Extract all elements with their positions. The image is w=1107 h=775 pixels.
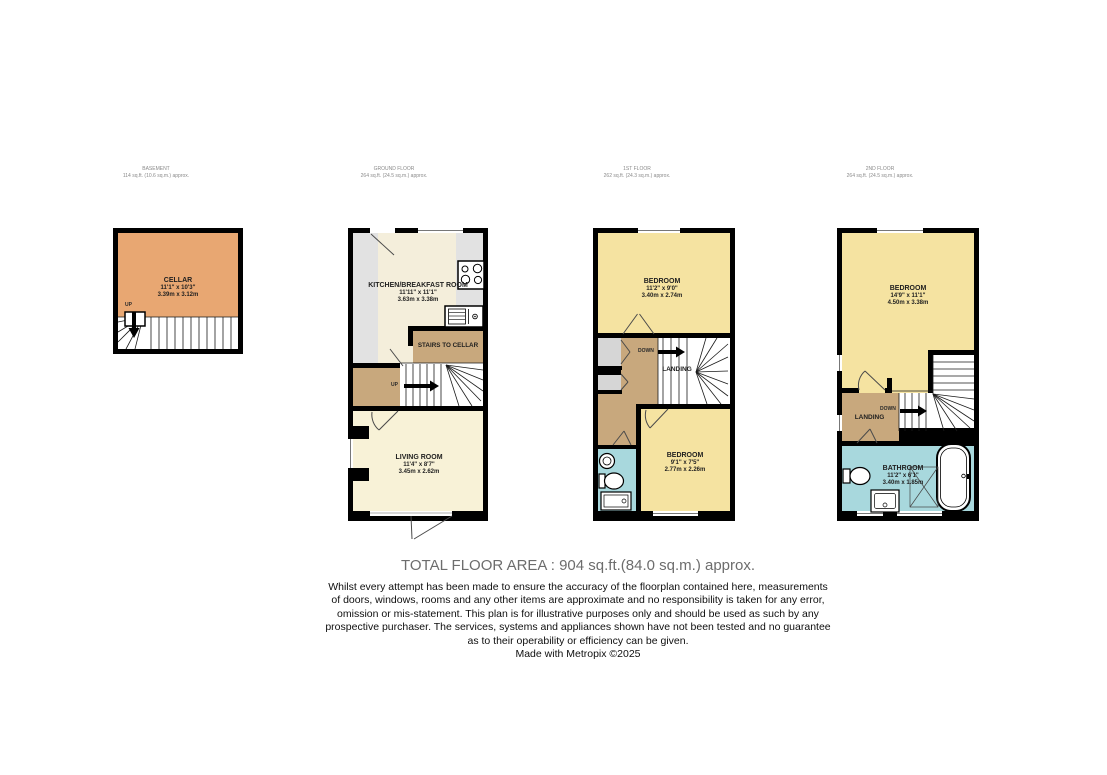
kitchen-dims-ft: 11'11" x 11'1"	[357, 290, 479, 297]
front-door-opening	[370, 228, 395, 233]
cellar-staircase	[118, 317, 238, 349]
credit-line: Made with Metropix ©2025	[288, 648, 868, 661]
ground-floor-header: GROUND FLOOR 264 sq.ft. (24.5 sq.m.) app…	[329, 166, 459, 179]
ground-floor-header-area: 264 sq.ft. (24.5 sq.m.) approx.	[329, 173, 459, 180]
disclaimer-line: omission or mis-statement. This plan is …	[288, 608, 868, 621]
bedroom-dims-ft: 14'9" x 11'1"	[848, 293, 968, 300]
bedroom-front-dims-m: 3.40m x 2.74m	[600, 293, 724, 300]
cellar-room	[118, 233, 238, 317]
side-window-upper	[837, 355, 842, 371]
kitchen-label: KITCHEN/BREAKFAST ROOM 11'11" x 11'1" 3.…	[357, 282, 479, 304]
living-room-name: LIVING ROOM	[356, 454, 482, 462]
up-label: UP	[391, 382, 398, 388]
bathroom-window-right	[897, 511, 942, 516]
stairs-to-cellar-label: STAIRS TO CELLAR	[414, 342, 482, 349]
bedroom-front-dims-ft: 11'2" x 9'0"	[600, 286, 724, 293]
bedroom-dims-m: 4.50m x 3.38m	[848, 300, 968, 307]
bedroom-front-name: BEDROOM	[600, 278, 724, 286]
basement-header-area: 114 sq.ft. (10.6 sq.m.) approx.	[91, 173, 221, 180]
cellar-dims-m: 3.39m x 3.12m	[118, 292, 238, 299]
second-floor-plan: DOWN LANDING BEDROOM 14'9" x 11'1" 4.50m…	[837, 228, 979, 521]
kitchen-dims-m: 3.63m x 3.38m	[357, 297, 479, 304]
bedroom-name: BEDROOM	[848, 285, 968, 293]
up-staircase	[400, 363, 483, 406]
basement-plan: UP CELLAR 11'1" x 10'3" 3.39m x 3.12m	[113, 228, 243, 354]
kitchen-counter-right	[456, 233, 483, 326]
disclaimer: Whilst every attempt has been made to en…	[288, 581, 868, 661]
disclaimer-line: as to their operability or efficiency ca…	[288, 635, 868, 648]
closet-divider-wall	[598, 366, 622, 370]
bathroom-dims-m: 3.40m x 1.85m	[873, 480, 933, 487]
landing-corridor	[598, 394, 636, 445]
living-room-label: LIVING ROOM 11'4" x 8'7" 3.45m x 2.62m	[356, 454, 482, 476]
floorplan-page: BASEMENT 114 sq.ft. (10.6 sq.m.) approx.…	[0, 0, 1107, 775]
down-label: DOWN	[880, 406, 896, 412]
bedroom-back-window	[653, 511, 698, 516]
second-floor-header: 2ND FLOOR 264 sq.ft. (24.5 sq.m.) approx…	[815, 166, 945, 179]
living-room-dims-ft: 11'4" x 8'7"	[356, 462, 482, 469]
first-floor-header-area: 262 sq.ft. (24.3 sq.m.) approx.	[572, 173, 702, 180]
kitchen-window	[418, 228, 463, 233]
chimney-notch-top	[353, 426, 369, 439]
second-floor-header-area: 264 sq.ft. (24.5 sq.m.) approx.	[815, 173, 945, 180]
basement-header: BASEMENT 114 sq.ft. (10.6 sq.m.) approx.	[91, 166, 221, 179]
down-staircase-upper	[933, 355, 974, 431]
bedroom-window	[877, 228, 923, 233]
total-floor-area: TOTAL FLOOR AREA : 904 sq.ft.(84.0 sq.m.…	[248, 557, 908, 574]
bathroom-room	[598, 449, 636, 511]
bedroom-back-name: BEDROOM	[643, 452, 727, 460]
stairs-bottom-wall	[899, 428, 974, 433]
disclaimer-line: of doors, windows, rooms and any other i…	[288, 594, 868, 607]
ground-floor-plan: UP STAIRS TO CELLAR KITCHEN/BREAKFAST RO…	[348, 228, 488, 521]
bedroom-wall-stub	[887, 378, 892, 393]
bedroom-front-window	[638, 228, 680, 233]
landing-label: LANDING	[655, 366, 699, 373]
landing-label: LANDING	[847, 414, 892, 421]
cellar-label: CELLAR 11'1" x 10'3" 3.39m x 3.12m	[118, 277, 238, 299]
side-window-lower	[837, 415, 842, 431]
bedroom-label: BEDROOM 14'9" x 11'1" 4.50m x 3.38m	[848, 285, 968, 307]
bathroom-name: BATHROOM	[873, 465, 933, 473]
bedroom-back-dims-m: 2.77m x 2.26m	[643, 467, 727, 474]
bathroom-label: BATHROOM 11'2" x 6'1" 3.40m x 1.85m	[873, 465, 933, 487]
down-label: DOWN	[638, 348, 654, 354]
living-room-dims-m: 3.45m x 2.62m	[356, 469, 482, 476]
disclaimer-line: Whilst every attempt has been made to en…	[288, 581, 868, 594]
bathroom-window-left	[857, 511, 883, 516]
bedroom-back-label: BEDROOM 9'1" x 7'5" 2.77m x 2.26m	[643, 452, 727, 474]
up-label: UP	[125, 302, 132, 308]
cellar-name: CELLAR	[118, 277, 238, 285]
kitchen-name: KITCHEN/BREAKFAST ROOM	[357, 282, 479, 290]
bedroom-back-dims-ft: 9'1" x 7'5"	[643, 460, 727, 467]
closet-top	[598, 338, 621, 366]
closet-bottom	[598, 375, 621, 390]
first-floor-plan: DOWN LANDING BEDROOM 11'2" x 9'0" 3.40m …	[593, 228, 735, 521]
bedroom-room-lower	[842, 350, 928, 393]
bedroom-front-label: BEDROOM 11'2" x 9'0" 3.40m x 2.74m	[600, 278, 724, 300]
down-staircase-lower	[899, 393, 933, 431]
bathroom-dims-ft: 11'2" x 6'1"	[873, 473, 933, 480]
living-door-opening	[370, 511, 452, 516]
cellar-dims-ft: 11'1" x 10'3"	[118, 285, 238, 292]
living-bay-window	[348, 439, 353, 468]
first-floor-header: 1ST FLOOR 262 sq.ft. (24.3 sq.m.) approx…	[572, 166, 702, 179]
disclaimer-line: prospective purchaser. The services, sys…	[288, 621, 868, 634]
